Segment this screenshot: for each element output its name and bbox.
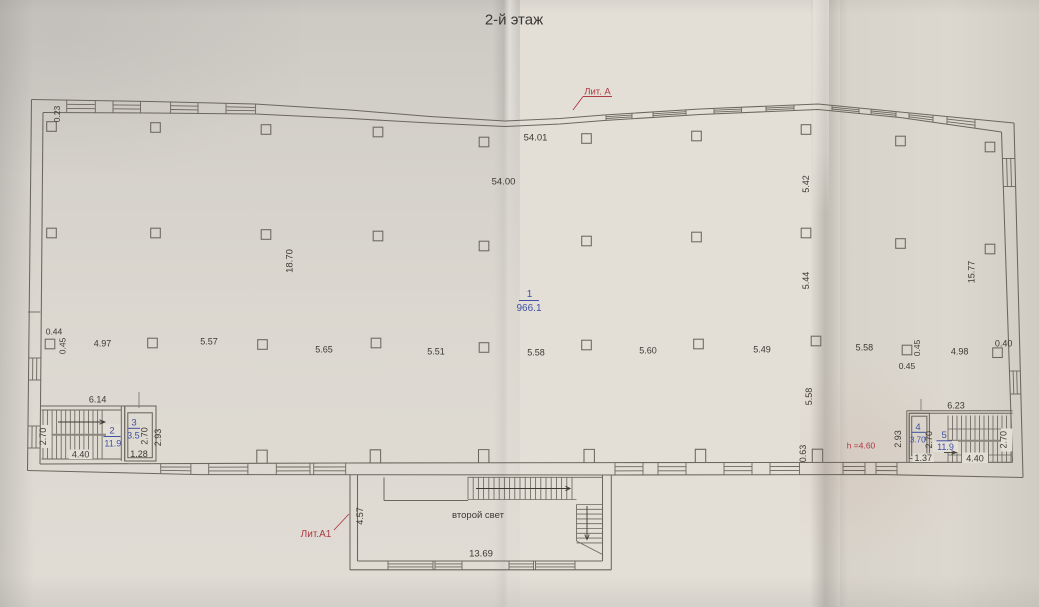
svg-text:0.44: 0.44 [46,327,63,337]
svg-text:5.65: 5.65 [315,345,333,355]
svg-text:4.40: 4.40 [966,454,984,464]
svg-text:5.42: 5.42 [801,175,811,193]
svg-text:5.60: 5.60 [639,346,657,356]
svg-text:1: 1 [527,289,533,300]
svg-text:6.14: 6.14 [89,395,107,405]
svg-text:2-й этаж: 2-й этаж [485,12,543,29]
svg-text:5.58: 5.58 [856,343,874,353]
svg-text:2.93: 2.93 [893,430,903,448]
svg-text:h =4.60: h =4.60 [847,441,876,451]
svg-text:Лит. А: Лит. А [584,87,611,98]
svg-text:2.70: 2.70 [999,431,1009,449]
svg-text:2.70: 2.70 [140,427,150,445]
svg-text:5.58: 5.58 [804,388,814,406]
svg-text:0.45: 0.45 [912,339,922,356]
svg-text:1.28: 1.28 [130,449,148,459]
svg-text:5.58: 5.58 [527,348,545,358]
svg-text:966.1: 966.1 [516,303,541,314]
svg-text:0.23: 0.23 [52,105,62,122]
svg-text:0.40: 0.40 [995,339,1013,349]
svg-text:4: 4 [915,422,920,433]
svg-text:2.93: 2.93 [153,429,163,447]
svg-text:15.77: 15.77 [967,261,977,284]
svg-text:2: 2 [109,426,114,437]
svg-text:11.9: 11.9 [937,442,954,452]
svg-text:5.49: 5.49 [753,345,771,355]
svg-text:13.69: 13.69 [469,549,493,560]
svg-text:0.63: 0.63 [798,445,808,463]
svg-text:18.70: 18.70 [285,249,296,273]
svg-text:54.01: 54.01 [524,133,548,144]
svg-text:54.00: 54.00 [492,177,516,188]
svg-text:4.97: 4.97 [94,339,112,349]
svg-text:4.98: 4.98 [951,347,969,357]
svg-text:5.44: 5.44 [801,272,811,290]
svg-text:0.45: 0.45 [899,361,916,371]
svg-text:3: 3 [131,418,136,429]
svg-text:5.57: 5.57 [200,337,218,347]
svg-text:0.45: 0.45 [58,337,68,354]
svg-text:4.40: 4.40 [72,450,90,460]
svg-text:1.37: 1.37 [915,453,933,463]
svg-text:5: 5 [942,430,947,441]
svg-text:2.70: 2.70 [924,431,934,449]
svg-text:5.51: 5.51 [427,347,445,357]
svg-text:11.9: 11.9 [104,439,121,449]
svg-text:Лит.А1: Лит.А1 [301,529,332,540]
svg-text:4.57: 4.57 [355,507,365,525]
svg-text:6.23: 6.23 [947,401,965,411]
svg-text:второй свет: второй свет [452,510,505,521]
svg-text:2.70: 2.70 [38,428,48,446]
svg-text:3.5: 3.5 [127,431,140,441]
